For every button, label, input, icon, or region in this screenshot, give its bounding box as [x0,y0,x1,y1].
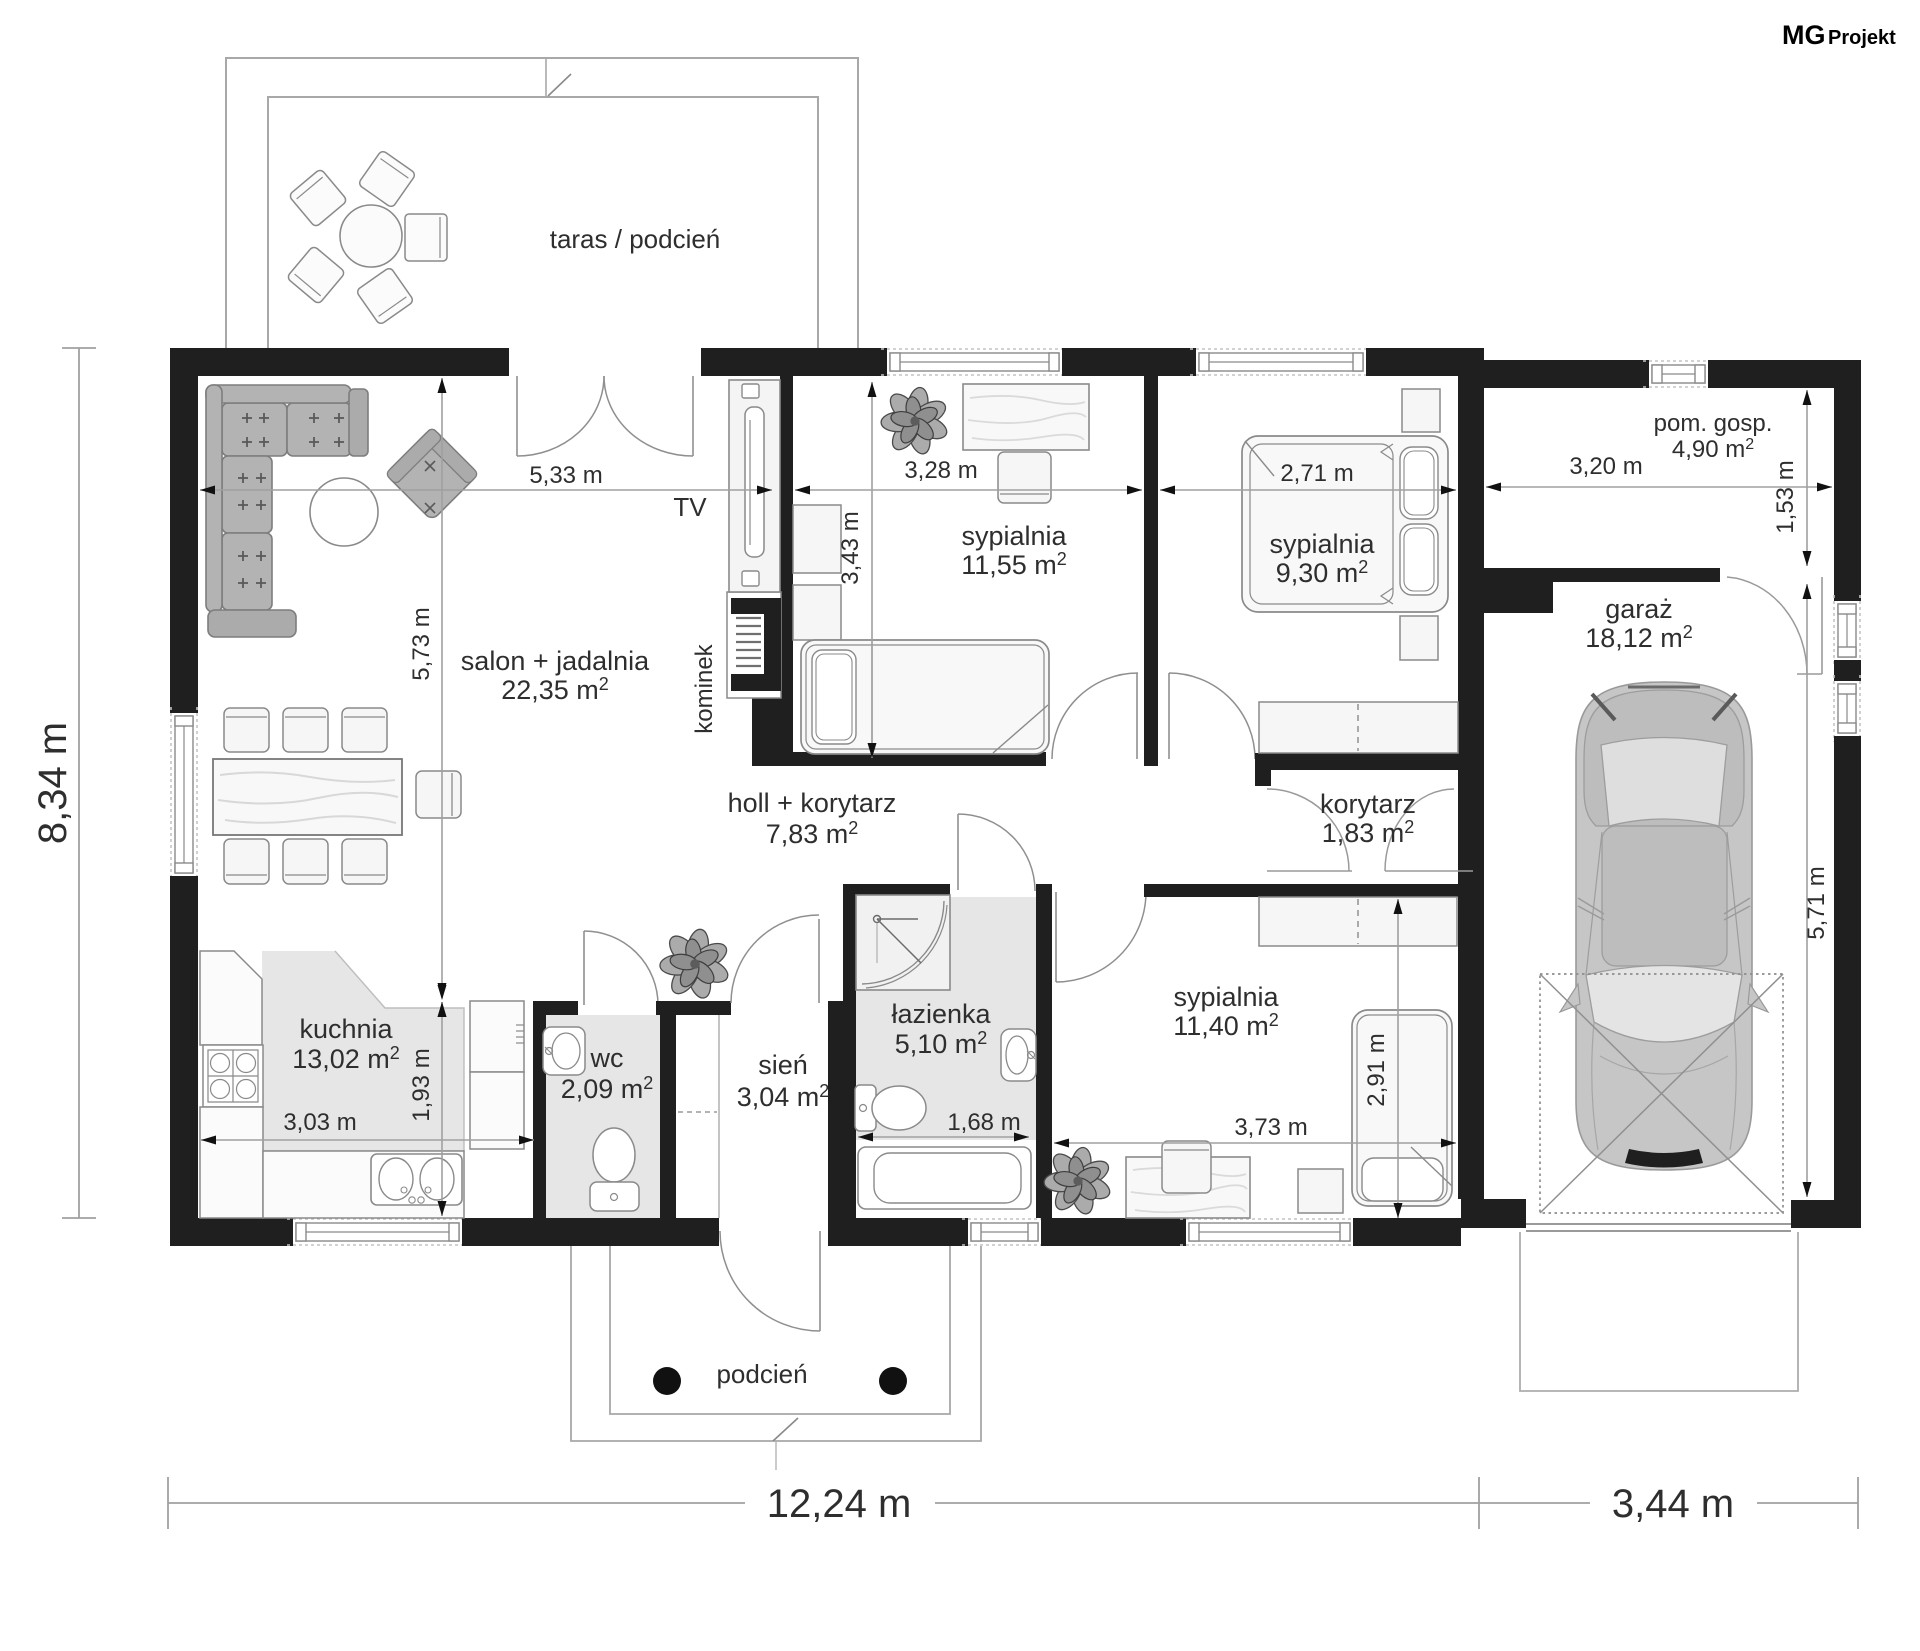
svg-text:sypialnia: sypialnia [1173,982,1279,1012]
svg-text:garaż: garaż [1605,594,1673,624]
svg-text:1,68 m: 1,68 m [947,1109,1020,1136]
svg-text:łazienka: łazienka [891,999,991,1029]
svg-text:18,12 m2: 18,12 m2 [1585,622,1693,653]
svg-text:salon + jadalnia: salon + jadalnia [461,646,650,676]
svg-text:TV: TV [673,492,707,522]
svg-text:3,43 m: 3,43 m [837,511,864,584]
svg-text:22,35 m2: 22,35 m2 [501,674,609,705]
svg-text:kuchnia: kuchnia [299,1014,393,1044]
svg-text:holl + korytarz: holl + korytarz [728,788,897,818]
svg-text:wc: wc [590,1043,624,1073]
svg-text:3,28 m: 3,28 m [904,457,977,484]
svg-text:11,55 m2: 11,55 m2 [961,549,1067,580]
svg-text:MG: MG [1782,20,1826,50]
svg-text:sypialnia: sypialnia [961,521,1067,551]
svg-text:11,40 m2: 11,40 m2 [1173,1010,1279,1041]
svg-text:podcień: podcień [716,1359,807,1389]
svg-text:taras / podcień: taras / podcień [550,224,721,254]
svg-text:3,20 m: 3,20 m [1569,453,1642,480]
svg-text:2,09 m2: 2,09 m2 [561,1073,654,1104]
svg-text:5,71 m: 5,71 m [1803,866,1830,939]
svg-text:5,10 m2: 5,10 m2 [895,1028,988,1059]
svg-text:1,53 m: 1,53 m [1772,460,1799,533]
svg-text:3,04 m2: 3,04 m2 [737,1081,830,1112]
svg-text:1,93 m: 1,93 m [408,1048,435,1121]
svg-text:pom. gosp.: pom. gosp. [1654,410,1773,437]
svg-text:sień: sień [758,1050,808,1080]
svg-text:3,03 m: 3,03 m [283,1109,356,1136]
svg-text:Projekt: Projekt [1828,27,1896,49]
svg-text:2,71 m: 2,71 m [1280,460,1353,487]
svg-text:3,73 m: 3,73 m [1234,1114,1307,1141]
svg-text:13,02 m2: 13,02 m2 [292,1043,400,1074]
svg-text:1,83 m2: 1,83 m2 [1322,817,1415,848]
svg-text:korytarz: korytarz [1320,789,1416,819]
svg-text:sypialnia: sypialnia [1269,529,1375,559]
svg-text:12,24 m: 12,24 m [767,1482,912,1526]
svg-text:4,90 m2: 4,90 m2 [1672,436,1754,463]
svg-text:7,83 m2: 7,83 m2 [766,818,859,849]
svg-text:5,33 m: 5,33 m [529,462,602,489]
svg-text:9,30 m2: 9,30 m2 [1276,557,1369,588]
svg-text:5,73 m: 5,73 m [408,607,435,680]
svg-text:3,44 m: 3,44 m [1612,1482,1734,1526]
svg-text:2,91 m: 2,91 m [1363,1033,1390,1106]
svg-text:8,34 m: 8,34 m [31,722,75,844]
svg-text:kominek: kominek [691,643,718,733]
